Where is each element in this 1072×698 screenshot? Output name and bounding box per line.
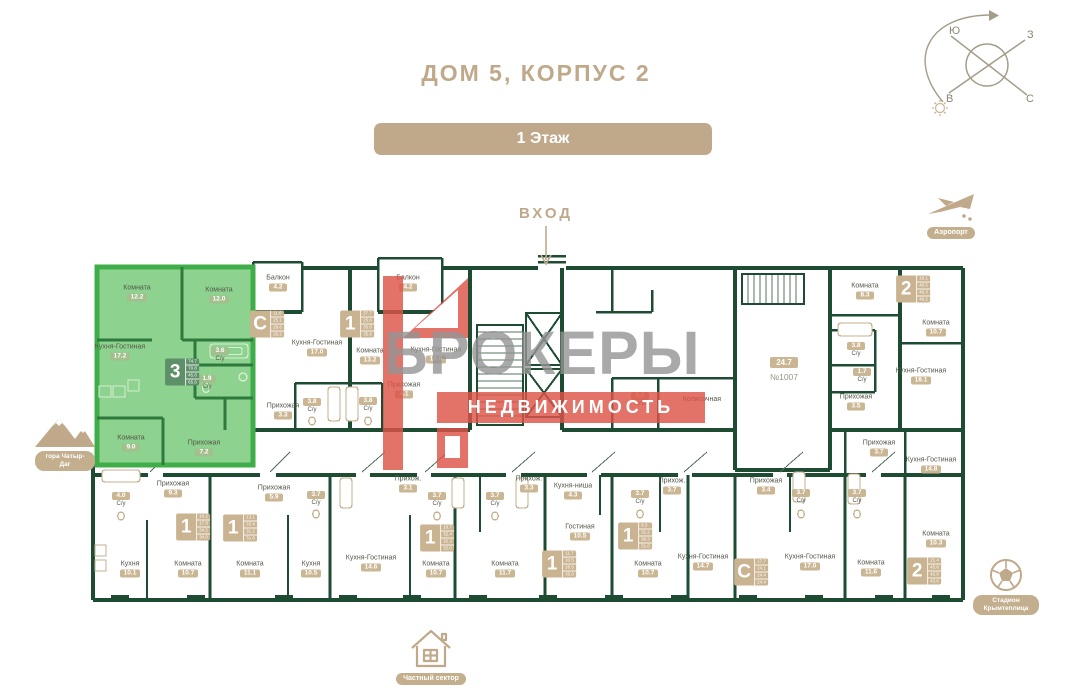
apartment-unit-highlighted[interactable] [97, 267, 253, 465]
entrance-label: ВХОД [506, 205, 586, 222]
unit-badge[interactable]: 219.146.546.346.2 [896, 276, 930, 303]
floor-plan-page: { "header": { "title": "ДОМ 5, КОРПУС 2"… [0, 0, 1072, 698]
landmark-airport-label: Аэропорт [927, 227, 975, 239]
landmark-private-sector: Частный сектор [394, 626, 468, 685]
unit-badge[interactable]: С11.025.129.628.2 [250, 311, 284, 338]
football-icon [989, 558, 1023, 592]
landmark-mountain-label: гора Чатыр-Даг [35, 451, 95, 471]
landmark-airport: Аэропорт [918, 188, 984, 239]
unit-badge[interactable]: 137.725.635.835.6 [340, 311, 374, 338]
elevator-shafts [526, 313, 562, 417]
unit-badge[interactable]: 111.733.528.535.0 [542, 551, 576, 578]
mountain-icon [33, 414, 97, 448]
landmark-mountain: гора Чатыр-Даг [28, 414, 102, 471]
house-icon [407, 626, 455, 670]
door-leaders [150, 452, 895, 472]
landmark-stadium-label: Стадион Крымтеплица [973, 595, 1039, 615]
unit-badge[interactable]: 19.331.230.331.0 [618, 523, 652, 550]
side-stairs [742, 274, 804, 304]
compass-icon: Ю З В С [915, 2, 1050, 122]
unit-badge[interactable]: 110.732.432.332.0 [420, 525, 454, 552]
compass-east: В [946, 93, 953, 105]
entrance-indicator: ВХОД [506, 205, 586, 268]
landmark-stadium: Стадион Крымтеплица [974, 558, 1038, 615]
airplane-icon [924, 188, 978, 224]
unit-badge[interactable]: 221.445.642.043.6 [907, 558, 941, 585]
landmark-private-sector-label: Частный сектор [396, 673, 466, 685]
compass-west: З [1027, 29, 1034, 41]
stair-core [477, 325, 523, 425]
compass-south: Ю [949, 25, 960, 37]
floor-select-button[interactable]: 1 Этаж [374, 123, 712, 155]
unit-badge[interactable]: 110.217.834.234.0 [176, 514, 210, 541]
unit-badge[interactable]: 113.133.431.231.0 [223, 515, 257, 542]
page-title: ДОМ 5, КОРПУС 2 [0, 60, 1072, 87]
compass-north: С [1026, 93, 1034, 105]
unit-badge[interactable]: С17.724.124.424.4 [734, 559, 768, 586]
down-arrow-icon [539, 224, 553, 268]
